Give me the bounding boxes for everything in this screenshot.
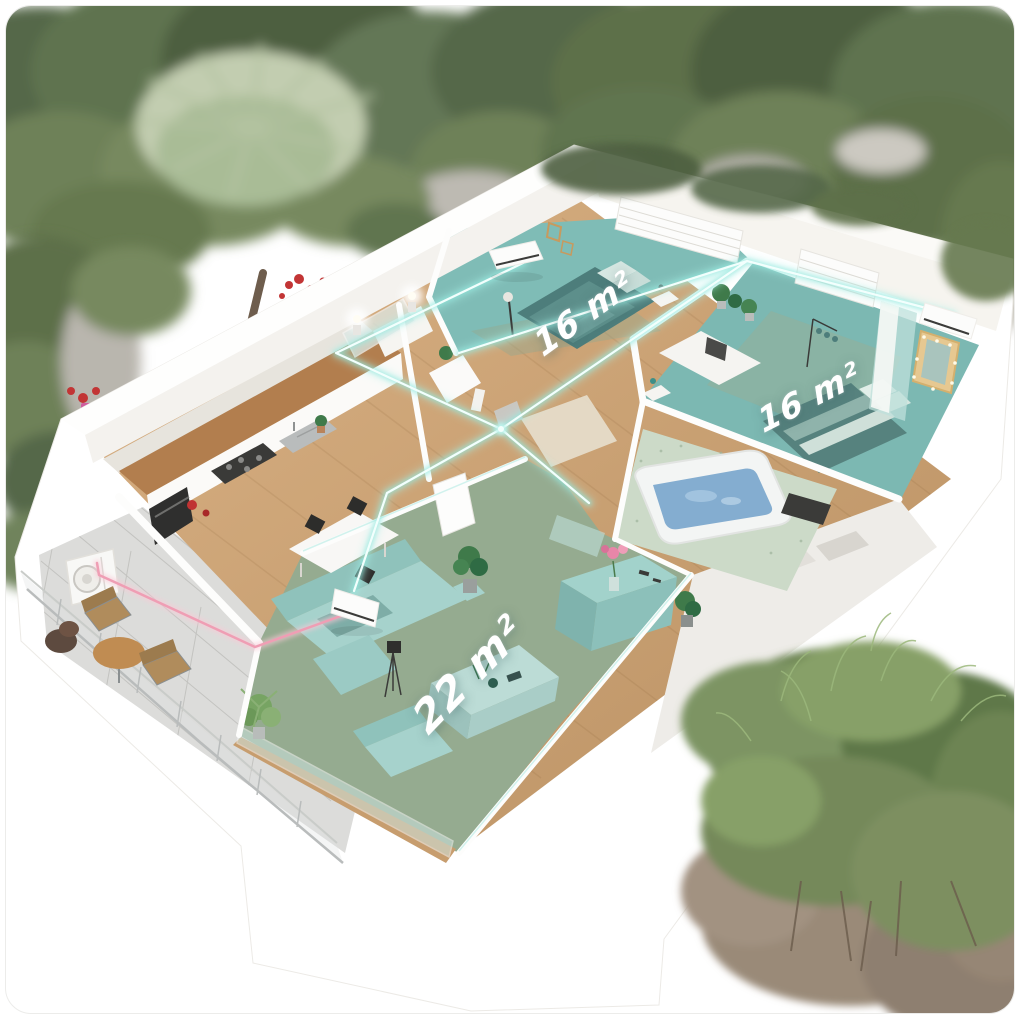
apartment-3d-floorplan-image: 16 m² 16 m² 22 m² xyxy=(0,0,1020,1019)
photo-frame: 16 m² 16 m² 22 m² xyxy=(5,5,1015,1014)
pipe-junction xyxy=(498,426,504,432)
bottom-right-bush xyxy=(681,613,1015,1014)
red-kettle xyxy=(187,500,197,510)
floorplan-render-svg xyxy=(6,6,1015,1014)
vanity-mirror xyxy=(912,331,959,393)
